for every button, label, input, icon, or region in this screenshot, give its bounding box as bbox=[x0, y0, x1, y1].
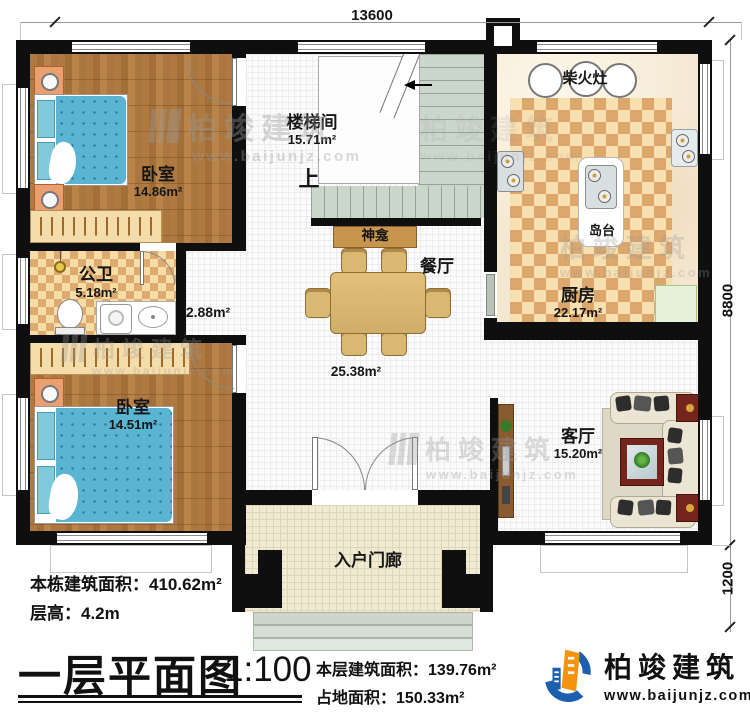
floor-area-label: 本层建筑面积： bbox=[316, 662, 428, 679]
porch-step bbox=[253, 625, 473, 638]
lamp-icon bbox=[41, 73, 59, 91]
fridge bbox=[655, 285, 697, 323]
land-area-line: 占地面积：150.33m² bbox=[316, 684, 465, 708]
window bbox=[57, 533, 207, 543]
watermark-url: www.baijunjz.com bbox=[92, 364, 236, 378]
bed-pillow bbox=[37, 100, 55, 138]
watermark: 柏竣建筑 www.baijunjz.com bbox=[62, 332, 236, 378]
sofa-pillow bbox=[637, 499, 654, 516]
extension-line bbox=[741, 22, 742, 40]
brand-website: www.baijunjz.com bbox=[604, 688, 750, 704]
porch-pillar bbox=[442, 550, 466, 578]
wardrobe bbox=[30, 210, 162, 243]
burner-icon bbox=[588, 169, 601, 182]
side-table-lamp-icon bbox=[686, 404, 694, 412]
hallway-area-label: 2.88m² bbox=[186, 305, 230, 320]
room-area-bathroom: 5.18m² bbox=[75, 286, 116, 300]
watermark: 柏竣建筑 www.baijunjz.com bbox=[390, 430, 578, 482]
watermark-logo-icon bbox=[148, 109, 182, 143]
dining-chair bbox=[425, 288, 451, 318]
room-label-kitchen: 厨房 bbox=[561, 287, 595, 306]
burner-icon bbox=[507, 174, 520, 187]
land-area-label: 占地面积： bbox=[316, 690, 396, 707]
brand-logo: 柏竣建筑 www.baijunjz.com bbox=[538, 644, 750, 706]
entry-door-leaf bbox=[312, 437, 318, 490]
wall bbox=[311, 218, 481, 226]
watermark-name: 柏竣建筑 bbox=[425, 430, 557, 467]
dimension-right-lower-value: 1200 bbox=[720, 561, 737, 597]
watermark-url: www.baijunjz.com bbox=[560, 265, 712, 280]
sofa-pillow bbox=[655, 499, 671, 515]
watermark: 柏竣建筑 www.baijunjz.com bbox=[150, 104, 361, 165]
dining-chair bbox=[341, 248, 367, 274]
sofa-pillow bbox=[615, 395, 632, 412]
watermark-name: 柏竣建筑 bbox=[187, 104, 335, 148]
sofa-pillow bbox=[633, 395, 651, 412]
wall bbox=[484, 322, 712, 340]
nightstand bbox=[34, 66, 64, 96]
title-underline bbox=[18, 695, 302, 698]
floor-height-value: 4.2m bbox=[81, 604, 120, 623]
washing-machine-drum bbox=[108, 310, 124, 326]
porch-pillar bbox=[442, 574, 486, 608]
title-underline bbox=[18, 701, 302, 703]
room-label-dining: 餐厅 bbox=[420, 258, 454, 277]
room-label-bedroom-top: 卧室 bbox=[141, 166, 175, 185]
side-table-lamp-icon bbox=[686, 504, 694, 512]
room-area-bedroom-top: 14.86m² bbox=[134, 185, 182, 199]
lamp-icon bbox=[41, 191, 59, 209]
window bbox=[700, 420, 710, 500]
watermark: 柏竣建筑 www.baijunjz.com bbox=[560, 228, 712, 280]
lamp-icon bbox=[41, 385, 59, 403]
watermark: 柏竣建筑 www.baijunjz.com bbox=[420, 108, 581, 164]
plan-scale: 1:100 bbox=[224, 650, 312, 690]
toilet-icon bbox=[57, 299, 83, 329]
room-area-kitchen: 22.17m² bbox=[554, 306, 602, 320]
watermark-name: 柏竣建筑 bbox=[420, 108, 560, 148]
shrine-label: 神龛 bbox=[362, 229, 389, 244]
room-label-bedroom-bottom: 卧室 bbox=[116, 399, 150, 418]
dimension-right-upper-value: 8800 bbox=[720, 283, 737, 319]
dining-table bbox=[330, 272, 426, 334]
floor-area-value: 139.76m² bbox=[428, 662, 497, 679]
window bbox=[545, 533, 680, 543]
porch-pillar bbox=[258, 550, 282, 578]
building-area-label: 本栋建筑面积： bbox=[30, 575, 149, 594]
dining-chair bbox=[381, 248, 407, 274]
sofa-pillow bbox=[667, 427, 683, 444]
watermark-logo-icon bbox=[61, 334, 88, 362]
stair-arrow-tail bbox=[414, 84, 432, 86]
building-area-line: 本栋建筑面积：410.62m² bbox=[30, 570, 222, 595]
dimension-top-value: 13600 bbox=[351, 8, 393, 25]
dining-chair bbox=[305, 288, 331, 318]
ceiling-lamp-icon bbox=[54, 261, 66, 273]
sink-bowl-icon bbox=[682, 150, 695, 163]
wall bbox=[16, 243, 140, 251]
wall bbox=[418, 490, 493, 505]
window bbox=[18, 88, 28, 188]
building-area-value: 410.62m² bbox=[149, 575, 222, 594]
window bbox=[18, 398, 28, 490]
extension-line bbox=[20, 22, 21, 40]
chimney-flue bbox=[494, 26, 512, 46]
plant-icon bbox=[634, 452, 650, 468]
stair-up-label: 上 bbox=[299, 168, 320, 191]
wood-stove-burner bbox=[528, 63, 563, 98]
sofa-pillow bbox=[667, 447, 684, 464]
window bbox=[700, 64, 710, 154]
room-label-bathroom: 公卫 bbox=[79, 266, 113, 285]
window bbox=[18, 258, 28, 324]
window bbox=[537, 42, 657, 52]
watermark-name: 柏竣建筑 bbox=[93, 332, 209, 364]
window-sill bbox=[540, 545, 688, 573]
sofa-pillow bbox=[667, 467, 682, 483]
bed-pillow bbox=[37, 412, 55, 460]
porch-step bbox=[253, 612, 473, 625]
sofa-pillow bbox=[617, 499, 634, 516]
room-area-dining: 25.38m² bbox=[331, 365, 381, 380]
door-leaf bbox=[486, 274, 495, 316]
sofa-pillow bbox=[653, 395, 669, 411]
window bbox=[298, 42, 425, 52]
entry-door-gap bbox=[312, 490, 418, 505]
land-area-value: 150.33m² bbox=[396, 690, 465, 707]
sink-drain bbox=[151, 315, 155, 319]
nightstand bbox=[34, 378, 64, 408]
room-label-porch: 入户门廊 bbox=[334, 552, 402, 571]
porch-pillar bbox=[238, 574, 282, 608]
extension-line bbox=[712, 545, 730, 546]
wall bbox=[176, 251, 186, 343]
watermark-name: 柏竣建筑 bbox=[560, 228, 692, 265]
wood-stove-label: 柴火灶 bbox=[562, 71, 607, 88]
floor-height-label: 层高： bbox=[30, 604, 81, 623]
sink-bowl-icon bbox=[676, 134, 689, 147]
wall bbox=[232, 40, 246, 58]
watermark-url: www.baijunjz.com bbox=[426, 467, 578, 482]
door-leaf bbox=[232, 58, 237, 106]
room-area-bedroom-bottom: 14.51m² bbox=[109, 418, 157, 432]
window bbox=[72, 42, 190, 52]
media-device bbox=[502, 486, 510, 504]
wall bbox=[176, 243, 246, 251]
door-gap bbox=[140, 243, 176, 251]
brand-name: 柏竣建筑 bbox=[604, 646, 750, 686]
floor-plan-page: { "dimensions": { "top": "13600", "right… bbox=[0, 0, 750, 716]
stair-flight-horizontal bbox=[311, 186, 484, 218]
wall bbox=[232, 490, 312, 505]
watermark-url: www.baijunjz.com bbox=[192, 148, 361, 165]
floor-height-line: 层高：4.2m bbox=[30, 599, 120, 624]
brand-logo-icon bbox=[538, 644, 596, 706]
watermark-logo-icon bbox=[388, 433, 419, 465]
burner-icon bbox=[598, 190, 611, 203]
window-sill bbox=[50, 545, 212, 573]
watermark-url: www.baijunjz.com bbox=[420, 148, 581, 164]
floor-area-line: 本层建筑面积：139.76m² bbox=[316, 656, 497, 680]
